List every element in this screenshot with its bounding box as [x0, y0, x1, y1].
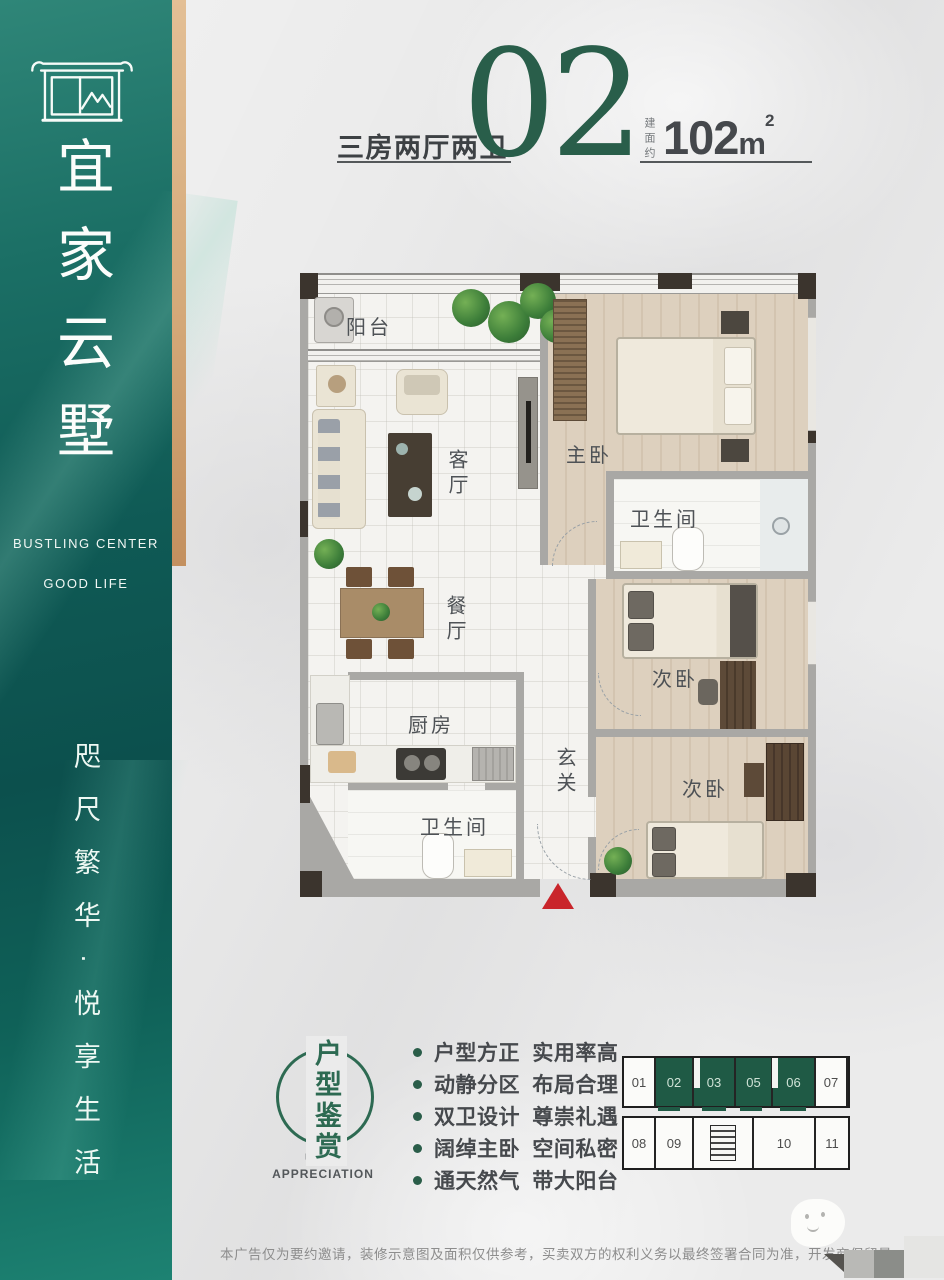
dining-chair-icon [346, 567, 372, 587]
watermark-fragment [874, 1250, 904, 1278]
room-label-dining-room: 餐厅 [440, 595, 469, 645]
building-key-plan: 01 02 03 05 06 07 08 09 10 11 [622, 1056, 850, 1170]
armchair-cushion [404, 375, 440, 395]
vanity-sink-icon [620, 541, 662, 569]
room-label-bathroom-common: 卫生间 [420, 811, 489, 840]
divider-line [640, 161, 812, 163]
bullet-dot-icon [413, 1080, 422, 1089]
nightstand-icon [721, 311, 749, 334]
gold-accent-bar [172, 0, 186, 566]
room-label-balcony: 阳台 [346, 311, 392, 340]
balcony-window-wall [308, 349, 540, 362]
side-table-plate [328, 375, 346, 393]
pillow [652, 827, 676, 851]
unit-cell-08: 08 [624, 1118, 656, 1168]
plant-icon [604, 847, 632, 875]
column [658, 273, 692, 289]
wall [516, 672, 524, 879]
wall [588, 579, 596, 737]
stairs-icon [710, 1125, 736, 1161]
room-label-kitchen: 厨房 [408, 709, 454, 738]
bullet-dot-icon [413, 1112, 422, 1121]
plant-icon [314, 539, 344, 569]
tagline-line2: GOOD LIFE [0, 576, 172, 591]
wall-notch [772, 1058, 778, 1088]
pillow [628, 591, 654, 619]
bullet-dot-icon [413, 1176, 422, 1185]
bullet-dot-icon [413, 1048, 422, 1057]
coffee-table-decor [408, 487, 422, 501]
wall-notch [694, 1058, 700, 1088]
unit-cell-01: 01 [624, 1058, 656, 1106]
area-prefix: 建面约 [641, 117, 657, 162]
entrance-arrow-icon [542, 883, 574, 909]
sidebar-water-image: 宜家云墅 BUSTLING CENTER GOOD LIFE 咫尺繁华·悦享生活 [0, 0, 172, 1280]
coffee-table-icon [388, 433, 432, 517]
fridge-icon [472, 747, 514, 781]
wall [606, 471, 808, 479]
kitchen-sink-icon [316, 703, 344, 745]
toilet-icon [672, 527, 704, 571]
pillow [724, 387, 752, 425]
slogan-vertical: 咫尺繁华·悦享生活 [66, 742, 105, 1262]
unit-cell-07: 07 [816, 1058, 848, 1106]
wall [348, 783, 448, 790]
unit-cell-06: 06 [773, 1058, 816, 1106]
key-plan-corridor [622, 1106, 850, 1114]
column [798, 273, 816, 299]
feature-item: 双卫设计 尊崇礼遇 [413, 1100, 628, 1132]
washing-machine-drum [324, 307, 344, 327]
pillow [628, 623, 654, 651]
unit-cell-05: 05 [736, 1058, 773, 1106]
vanity-sink-icon [464, 849, 512, 877]
stamp-subtitle-line2: APPRECIATION [248, 1167, 398, 1181]
tv-screen-icon [526, 401, 531, 463]
wall [588, 737, 596, 797]
wall [348, 672, 524, 680]
desk-chair-icon [698, 679, 718, 705]
stair-core [694, 1118, 754, 1168]
wardrobe-icon [553, 299, 587, 421]
desk-icon [720, 661, 756, 729]
coffee-table-decor [396, 443, 408, 455]
column [300, 871, 322, 897]
gate-pavilion-logo-icon [28, 52, 136, 130]
column [300, 765, 310, 803]
feature-item: 通天然气 带大阳台 [413, 1164, 628, 1196]
watermark-sticker-face [791, 1199, 845, 1247]
stove-burner [404, 755, 420, 771]
stamp-title: 户型鉴赏 [306, 1036, 347, 1166]
column [590, 873, 616, 897]
room-label-bedroom-2: 次卧 [652, 663, 698, 692]
column [300, 501, 308, 537]
unit-cell-03: 03 [694, 1058, 736, 1106]
pillow [652, 853, 676, 877]
column [300, 273, 318, 299]
wall [590, 879, 816, 897]
watermark-fragment [844, 1250, 874, 1278]
nightstand-icon [721, 439, 749, 462]
wall [308, 879, 540, 897]
cutting-board-icon [328, 751, 356, 773]
pillow [724, 347, 752, 385]
dining-chair-icon [388, 567, 414, 587]
room-label-bathroom-master: 卫生间 [630, 503, 699, 532]
watermark-fragment [824, 1254, 844, 1272]
dining-chair-icon [388, 639, 414, 659]
unit-cell-02: 02 [656, 1058, 694, 1106]
wall [485, 783, 516, 790]
water-texture [0, 760, 210, 1180]
window [808, 317, 816, 431]
watermark-fragment [904, 1236, 944, 1278]
unit-cell-10: 10 [754, 1118, 816, 1168]
feature-item: 户型方正 实用率高 [413, 1036, 628, 1068]
room-label-master-bedroom: 主卧 [566, 439, 612, 468]
room-label-living-room: 客厅 [442, 449, 471, 499]
feature-list: 户型方正 实用率高 动静分区 布局合理 双卫设计 尊崇礼遇 阔绰主卧 空间私密 … [413, 1036, 628, 1196]
feature-item: 阔绰主卧 空间私密 [413, 1132, 628, 1164]
bed-runner [730, 585, 756, 657]
bullet-dot-icon [413, 1144, 422, 1153]
key-plan-bottom-row: 08 09 10 11 [622, 1116, 850, 1170]
unit-number: 02 [462, 30, 638, 178]
key-plan-top-row: 01 02 03 05 06 07 [622, 1056, 850, 1108]
wall [588, 729, 808, 737]
water-texture [0, 165, 238, 756]
brand-name: 宜家云墅 [52, 136, 110, 556]
poster-canvas: 宜家云墅 BUSTLING CENTER GOOD LIFE 咫尺繁华·悦享生活… [0, 0, 944, 1280]
room-label-foyer: 玄关 [550, 747, 579, 797]
floor-plan: 阳台 主卧 客厅 卫生间 餐厅 次卧 厨房 玄关 卫生间 次卧 [300, 273, 816, 897]
unit-cell-11: 11 [816, 1118, 848, 1168]
wardrobe-icon [766, 743, 804, 821]
column [786, 873, 816, 897]
desk-icon [744, 763, 764, 797]
wall [606, 571, 808, 579]
plant-icon [452, 289, 490, 327]
room-label-bedroom-3: 次卧 [682, 773, 728, 802]
sofa-cushions [318, 419, 340, 519]
window [808, 601, 816, 665]
wall [606, 479, 614, 579]
unit-cell-09: 09 [656, 1118, 694, 1168]
flower-centerpiece-icon [372, 603, 390, 621]
area-value: 102m2 [663, 110, 773, 165]
shower-icon [772, 517, 790, 535]
stove-burner [424, 755, 440, 771]
feature-item: 动静分区 布局合理 [413, 1068, 628, 1100]
dining-chair-icon [346, 639, 372, 659]
tagline-line1: BUSTLING CENTER [0, 536, 172, 551]
